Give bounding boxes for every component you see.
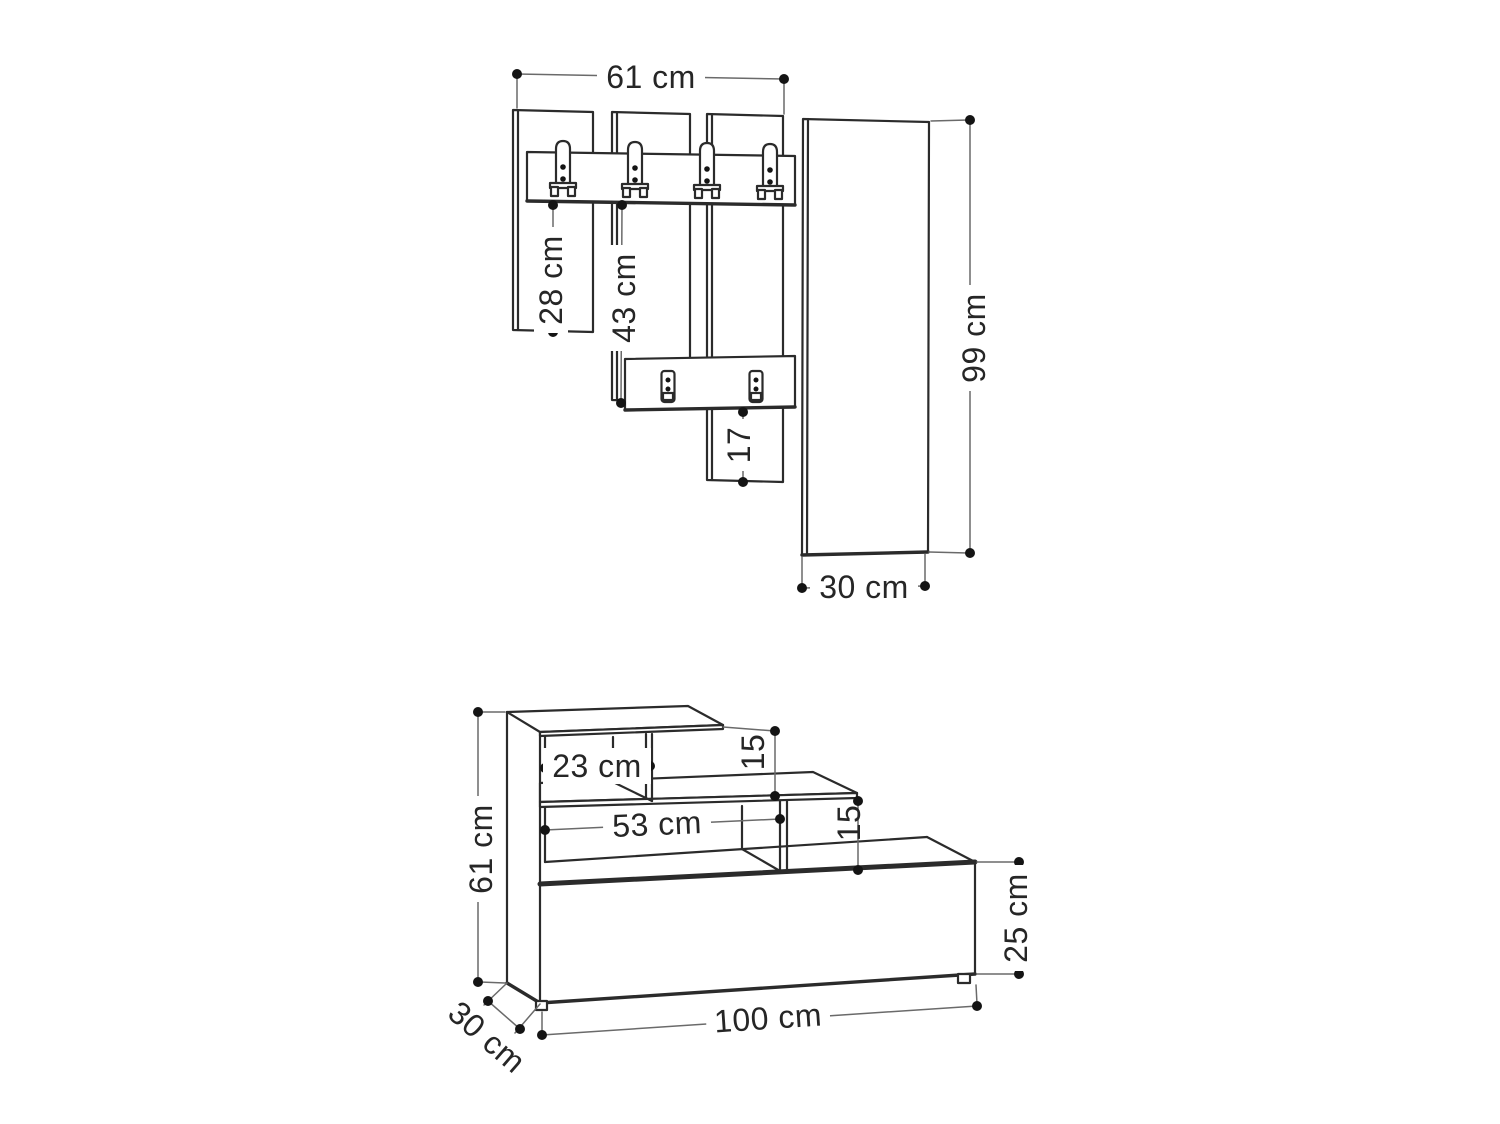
dim-bench-width-label: 100 cm — [713, 996, 823, 1039]
dim-top-shelf-width-label: 23 cm — [552, 748, 642, 784]
dim-top-width: 61 cm — [512, 59, 789, 114]
dim-side-panel-height: 99 cm — [929, 115, 992, 558]
wall-plate-icon — [750, 371, 763, 402]
tall-side-panel — [802, 119, 929, 555]
cabinet-body — [540, 837, 975, 1003]
dim-bench-height-label: 61 cm — [463, 804, 499, 894]
dim-top-width-label: 61 cm — [606, 59, 696, 95]
lower-divider — [742, 799, 787, 871]
dim-cabinet-height-label: 25 cm — [998, 873, 1034, 963]
dim-bench-height: 61 cm — [463, 707, 505, 987]
dim-middle-gap-label: 15 — [831, 805, 867, 842]
furniture-dimension-diagram: 61 cm 28 cm 43 cm — [0, 0, 1500, 1124]
dim-cabinet-height: 25 cm — [977, 857, 1034, 979]
dim-side-panel-width-label: 30 cm — [819, 569, 909, 605]
wall-unit-drawing: 61 cm 28 cm 43 cm — [512, 59, 992, 605]
dim-panel2-height-label: 43 cm — [606, 253, 642, 343]
wall-plate-icon — [662, 371, 675, 402]
dim-bench-depth: 30 cm — [441, 983, 540, 1080]
top-shelf — [507, 706, 723, 736]
dim-middle-shelf-width: 53 cm — [540, 804, 785, 845]
lower-shelf-rail — [625, 356, 795, 410]
technical-drawing-canvas: 61 cm 28 cm 43 cm — [0, 0, 1500, 1124]
bench-unit-drawing: 61 cm 23 cm 15 53 c — [441, 706, 1034, 1080]
dim-panel1-height-label: 28 cm — [533, 235, 569, 325]
dim-panel3-height-label: 17 — [721, 427, 757, 464]
dim-middle-gap: 15 — [831, 796, 867, 875]
dim-side-panel-height-label: 99 cm — [956, 293, 992, 383]
dim-side-panel-width: 30 cm — [797, 554, 930, 605]
dim-bench-depth-label: 30 cm — [441, 994, 532, 1080]
dim-middle-shelf-width-label: 53 cm — [611, 804, 702, 844]
dim-top-shelf-width: 23 cm — [540, 748, 655, 784]
dim-top-gap-label: 15 — [735, 734, 771, 771]
